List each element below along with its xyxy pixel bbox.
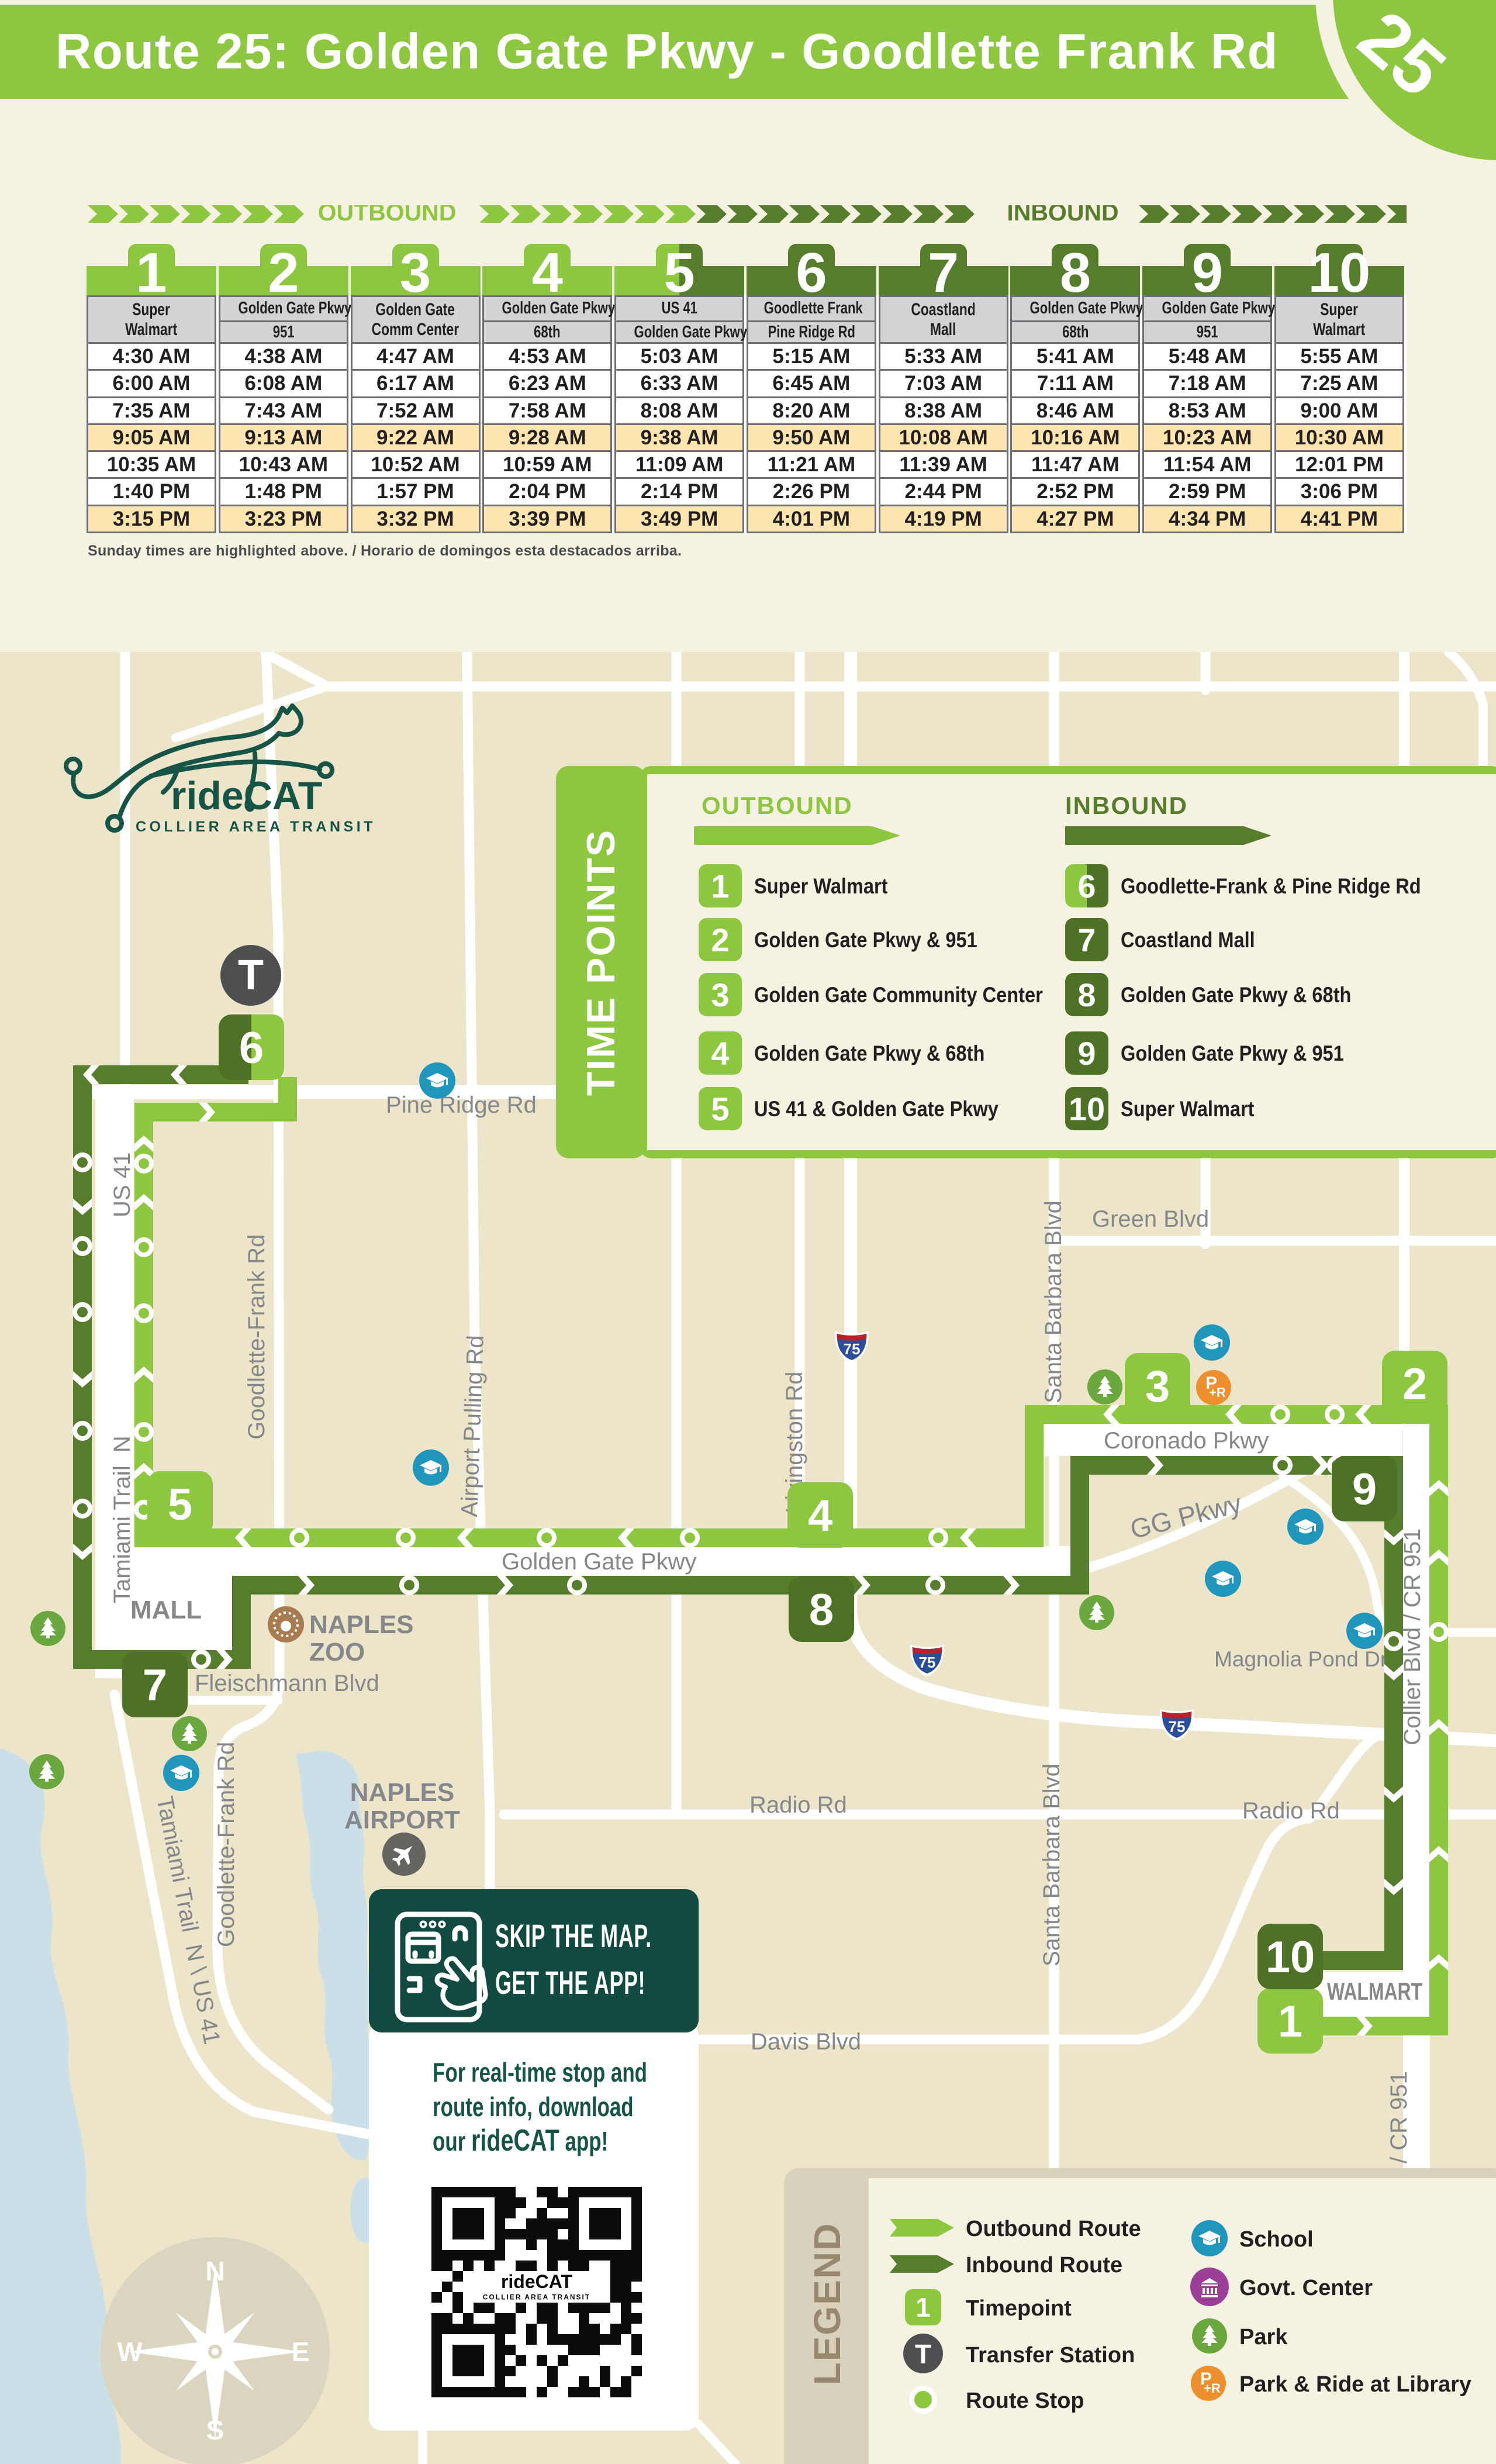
svg-text:1: 1 (711, 868, 729, 905)
svg-text:4: 4 (808, 1491, 832, 1541)
svg-text:Govt. Center: Govt. Center (1239, 2276, 1373, 2300)
svg-text:6: 6 (1077, 868, 1096, 905)
svg-text:Outbound Route: Outbound Route (966, 2217, 1141, 2241)
svg-text:Radio Rd: Radio Rd (749, 1792, 847, 1818)
svg-text:S: S (206, 2415, 224, 2445)
svg-text:Goodlette-Frank Rd: Goodlette-Frank Rd (213, 1742, 239, 1947)
svg-text:3: 3 (711, 976, 729, 1013)
svg-text:TIME POINTS: TIME POINTS (579, 829, 623, 1096)
svg-text:T: T (915, 2339, 931, 2369)
svg-text:Golden Gate Pkwy & 951: Golden Gate Pkwy & 951 (754, 928, 977, 952)
svg-text:1: 1 (1278, 1997, 1302, 2047)
svg-text:2: 2 (1402, 1359, 1427, 1409)
svg-text:9: 9 (1352, 1465, 1377, 1514)
svg-text:Green Blvd: Green Blvd (1092, 1206, 1209, 1232)
svg-text:4: 4 (711, 1035, 729, 1072)
svg-text:For real-time stop and: For real-time stop and (433, 2057, 647, 2087)
svg-text:Golden Gate Pkwy: Golden Gate Pkwy (502, 1549, 697, 1575)
svg-text:Golden Gate Community Center: Golden Gate Community Center (754, 983, 1043, 1007)
svg-text:T: T (238, 952, 264, 999)
svg-text:Coastland Mall: Coastland Mall (1121, 928, 1255, 952)
svg-text:8: 8 (809, 1585, 834, 1635)
svg-text:US 41 & Golden Gate Pkwy: US 41 & Golden Gate Pkwy (754, 1097, 999, 1121)
svg-text:Tamiami Trail N: Tamiami Trail N (109, 1435, 135, 1603)
svg-text:Super Walmart: Super Walmart (1121, 1097, 1255, 1121)
svg-text:our rideCAT app!: our rideCAT app! (433, 2123, 608, 2158)
svg-text:E: E (292, 2337, 310, 2367)
svg-text:Park & Ride at Library: Park & Ride at Library (1239, 2372, 1471, 2397)
svg-text:10: 10 (1069, 1090, 1105, 1127)
svg-text:Golden Gate Pkwy & 68th: Golden Gate Pkwy & 68th (754, 1041, 984, 1065)
svg-text:SKIP THE MAP.: SKIP THE MAP. (495, 1917, 652, 1954)
svg-text:Golden Gate Pkwy & 951: Golden Gate Pkwy & 951 (1121, 1041, 1344, 1065)
svg-text:INBOUND: INBOUND (1007, 205, 1118, 223)
svg-text:8: 8 (1077, 976, 1096, 1013)
svg-text:Santa Barbara Blvd: Santa Barbara Blvd (1041, 1200, 1066, 1403)
svg-text:route info, download: route info, download (433, 2092, 634, 2122)
svg-text:LEGEND: LEGEND (806, 2223, 848, 2386)
svg-text:5: 5 (711, 1090, 729, 1127)
svg-text:6: 6 (239, 1023, 264, 1073)
svg-text:rideCAT: rideCAT (171, 774, 322, 818)
svg-text:Golden Gate Pkwy & 68th: Golden Gate Pkwy & 68th (1121, 983, 1351, 1007)
svg-text:Pine Ridge Rd: Pine Ridge Rd (386, 1092, 537, 1118)
svg-text:5: 5 (168, 1480, 192, 1530)
svg-text:Magnolia Pond Dr: Magnolia Pond Dr (1214, 1647, 1387, 1671)
svg-text:Coronado Pkwy: Coronado Pkwy (1104, 1428, 1269, 1454)
svg-text:9: 9 (1077, 1035, 1096, 1072)
svg-text:ZOO: ZOO (309, 1638, 365, 1666)
svg-text:Goodlette-Frank & Pine Ridge R: Goodlette-Frank & Pine Ridge Rd (1121, 874, 1421, 898)
svg-text:US 41: US 41 (109, 1152, 135, 1217)
svg-text:3: 3 (1145, 1362, 1170, 1412)
svg-text:2: 2 (711, 922, 729, 958)
svg-text:Timepoint: Timepoint (966, 2296, 1072, 2321)
svg-text:COLLIER AREA TRANSIT: COLLIER AREA TRANSIT (483, 2293, 590, 2301)
svg-text:7: 7 (1077, 922, 1096, 958)
svg-text:Davis Blvd: Davis Blvd (751, 2029, 861, 2055)
svg-text:N: N (205, 2256, 224, 2286)
svg-text:Collier Blvd / CR 951: Collier Blvd / CR 951 (1400, 1528, 1425, 1745)
svg-text:Super Walmart: Super Walmart (754, 874, 888, 898)
svg-text:INBOUND: INBOUND (1065, 792, 1188, 819)
svg-text:Goodlette-Frank Rd: Goodlette-Frank Rd (244, 1234, 270, 1440)
svg-text:/ CR 951: / CR 951 (1386, 2071, 1412, 2163)
svg-text:Transfer Station: Transfer Station (966, 2343, 1135, 2368)
svg-text:OUTBOUND: OUTBOUND (702, 792, 853, 819)
svg-text:Fleischmann Blvd: Fleischmann Blvd (195, 1671, 379, 1696)
svg-text:GET THE APP!: GET THE APP! (495, 1964, 645, 2001)
svg-text:AIRPORT: AIRPORT (344, 1806, 460, 1834)
svg-text:Inbound Route: Inbound Route (966, 2253, 1122, 2277)
svg-text:COLLIER AREA TRANSIT: COLLIER AREA TRANSIT (136, 819, 376, 835)
svg-text:Route Stop: Route Stop (966, 2389, 1084, 2413)
svg-text:MALL: MALL (130, 1596, 202, 1624)
svg-text:Radio Rd: Radio Rd (1242, 1798, 1340, 1824)
svg-text:7: 7 (143, 1661, 167, 1710)
svg-text:NAPLES: NAPLES (350, 1778, 454, 1807)
svg-text:OUTBOUND: OUTBOUND (318, 205, 457, 223)
svg-text:Park: Park (1239, 2325, 1288, 2349)
svg-text:rideCAT: rideCAT (501, 2271, 573, 2292)
svg-text:W: W (117, 2337, 143, 2367)
svg-text:WALMART: WALMART (1327, 1978, 1422, 2005)
svg-text:Santa Barbara Blvd: Santa Barbara Blvd (1039, 1764, 1065, 1966)
svg-text:1: 1 (915, 2292, 931, 2322)
svg-text:School: School (1239, 2227, 1314, 2252)
svg-text:10: 10 (1266, 1932, 1315, 1982)
svg-text:NAPLES: NAPLES (309, 1610, 413, 1639)
